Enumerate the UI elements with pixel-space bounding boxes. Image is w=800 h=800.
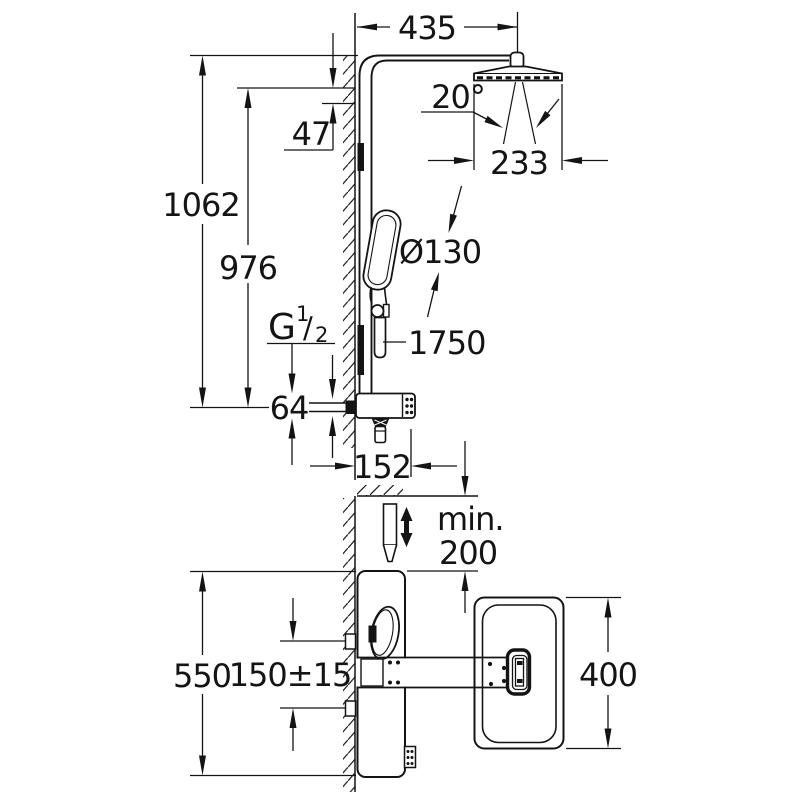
thread-slash-label: / — [303, 311, 313, 345]
hand-shower — [361, 208, 402, 357]
dim-64-label: 64 — [270, 389, 309, 427]
dim-400-label: 400 — [579, 656, 637, 694]
head-shower — [474, 12, 562, 81]
dim-152-label: 152 — [353, 448, 411, 486]
pipe-wall-brackets — [358, 143, 365, 375]
spray-angle-label: 20° — [431, 78, 485, 116]
dim-47-label: 47 — [292, 115, 331, 153]
min-200-label: 200 — [439, 534, 497, 572]
dim-976-label: 976 — [219, 249, 277, 287]
hose-length-label: 1750 — [408, 324, 485, 362]
thread-g-label: G — [268, 307, 296, 348]
dim-233-label: 233 — [490, 144, 548, 182]
min-label: min. — [437, 500, 504, 538]
technical-drawing: 435 20° 233 47 1062 976 Ø130 1750 G 1 / … — [0, 0, 800, 800]
dim-1062-label: 1062 — [162, 186, 239, 224]
dim-435-label: 435 — [398, 9, 456, 47]
mixer-valve-side — [356, 394, 415, 443]
screwdriver-icon — [384, 504, 397, 562]
up-down-adjust-icon — [401, 507, 413, 547]
spray-cone-lines — [504, 82, 536, 144]
dimension-drawing-page: 435 20° 233 47 1062 976 Ø130 1750 G 1 / … — [0, 0, 800, 800]
handshower-diameter-label: Ø130 — [399, 233, 481, 271]
thread-denominator-label: 2 — [315, 323, 328, 347]
dim-550-label: 550 — [173, 657, 231, 695]
thread-size-label: G 1 / 2 — [268, 302, 328, 348]
supply-nipple — [309, 401, 355, 415]
dim-150-label: 150±15 — [229, 656, 352, 694]
